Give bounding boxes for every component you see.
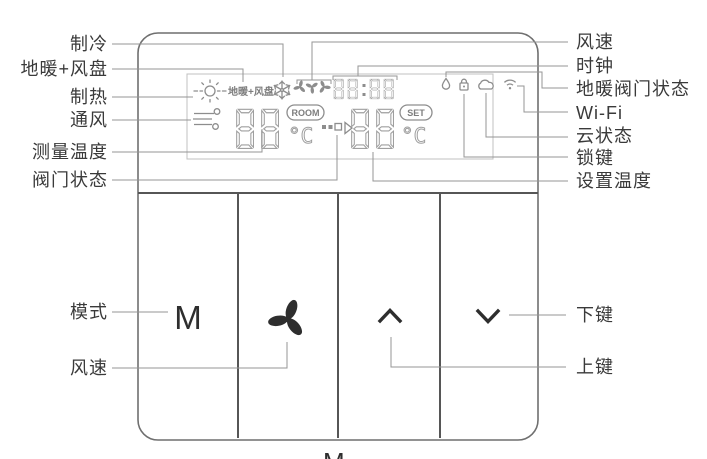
callout-wifi	[517, 86, 568, 112]
wind-icon	[193, 109, 220, 130]
wifi-icon	[504, 80, 515, 89]
valve-indicator-icon	[322, 123, 352, 134]
droplet-icon	[442, 79, 449, 90]
mode-button-glyph: M	[174, 299, 202, 336]
fan-speed-button[interactable]	[239, 194, 337, 438]
callout-fan-speed-display	[297, 42, 568, 84]
thermostat-annotated-diagram: 地暖+风盘	[0, 0, 707, 459]
label-up-key: 上键	[576, 357, 614, 377]
label-cloud-status: 云状态	[576, 126, 633, 146]
right-labels: 风速 时钟 地暖阀门状态 Wi-Fi 云状态 锁键 设置温度 下键 上键	[576, 32, 690, 377]
label-heating: 制热	[70, 87, 108, 107]
svg-text:SET: SET	[407, 108, 425, 118]
set-temp-digits	[352, 109, 394, 148]
label-floorheat-valve-status: 地暖阀门状态	[576, 79, 690, 99]
room-unit: °C	[288, 124, 313, 148]
down-button[interactable]	[441, 194, 537, 438]
label-valve-status: 阀门状态	[32, 170, 108, 190]
label-cooling: 制冷	[70, 34, 108, 54]
cloud-icon	[479, 80, 493, 89]
label-lock-key: 锁键	[576, 148, 614, 168]
callout-lock	[464, 94, 568, 157]
label-wifi: Wi-Fi	[576, 103, 623, 123]
label-fan-speed-display: 风速	[576, 32, 614, 52]
set-badge: SET	[400, 105, 432, 120]
label-down-key: 下键	[576, 305, 614, 325]
label-clock: 时钟	[576, 56, 614, 76]
clipped-footer-text: M	[323, 447, 345, 459]
room-badge: ROOM	[287, 105, 324, 120]
label-measured-temp: 测量温度	[32, 142, 108, 162]
callout-floorheat-fancoil	[112, 69, 243, 82]
mode-button[interactable]: M	[139, 194, 237, 438]
set-unit: °C	[401, 124, 426, 148]
label-mode-key: 模式	[70, 302, 108, 322]
lock-icon	[460, 79, 468, 90]
label-floorheat-fancoil: 地暖+风盘	[20, 59, 108, 79]
floorheat-fancoil-indicator: 地暖+风盘	[228, 85, 274, 98]
svg-text:ROOM: ROOM	[292, 108, 320, 118]
sun-icon	[194, 80, 226, 102]
callout-clock	[333, 66, 568, 80]
label-set-temp: 设置温度	[576, 171, 652, 191]
room-temp-digits	[237, 109, 279, 148]
label-ventilation: 通风	[70, 110, 108, 130]
left-labels: 制冷 地暖+风盘 制热 通风 测量温度 阀门状态 模式 风速	[20, 34, 108, 378]
label-fan-speed-key: 风速	[70, 358, 108, 378]
snowflake-icon	[272, 81, 291, 100]
callout-cloud	[486, 93, 568, 137]
up-button[interactable]	[339, 194, 439, 438]
clock-digits	[334, 79, 393, 99]
